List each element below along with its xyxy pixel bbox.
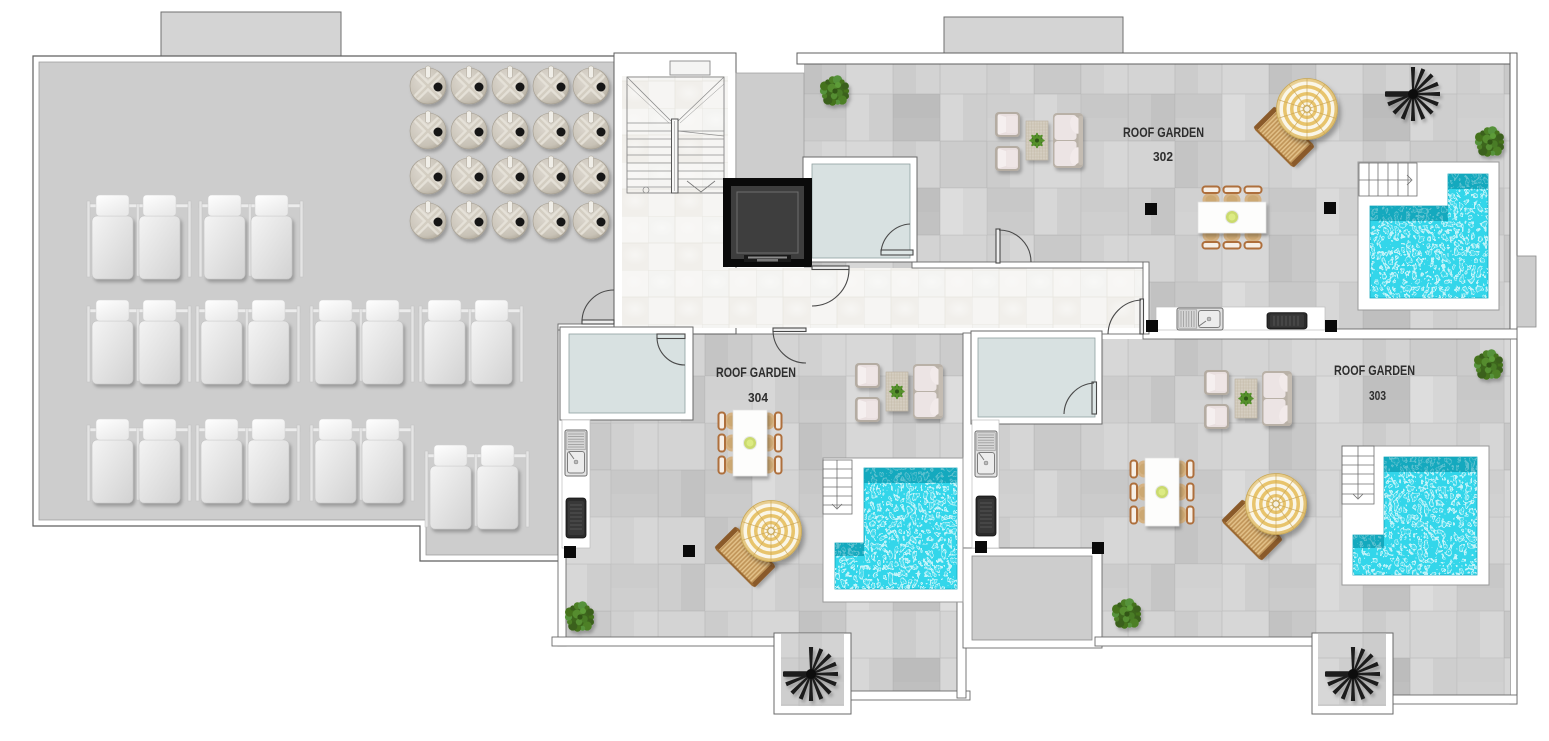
svg-text:304: 304: [748, 390, 769, 405]
svg-text:ROOF GARDEN: ROOF GARDEN: [716, 364, 796, 380]
svg-text:ROOF GARDEN: ROOF GARDEN: [1123, 124, 1204, 140]
svg-text:302: 302: [1153, 149, 1173, 164]
svg-text:ROOF GARDEN: ROOF GARDEN: [1334, 362, 1415, 378]
svg-text:303: 303: [1369, 388, 1386, 403]
